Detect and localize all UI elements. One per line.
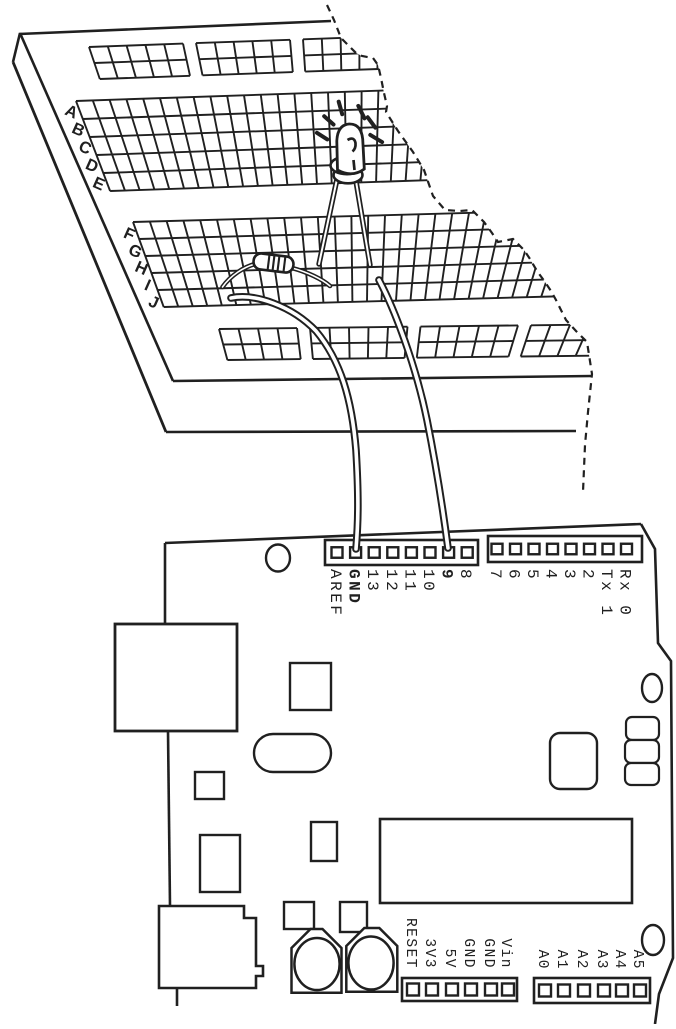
svg-text:9: 9	[438, 569, 456, 581]
svg-text:GND: GND	[480, 938, 496, 969]
svg-text:A2: A2	[573, 950, 589, 970]
svg-text:13: 13	[363, 569, 381, 593]
svg-text:5: 5	[523, 569, 541, 581]
svg-text:2: 2	[579, 569, 597, 581]
svg-text:A0: A0	[534, 950, 550, 970]
svg-text:RESET: RESET	[402, 918, 418, 969]
svg-text:AREF: AREF	[326, 569, 344, 617]
svg-text:A5: A5	[629, 950, 645, 970]
svg-text:10: 10	[419, 569, 437, 593]
svg-text:5V: 5V	[441, 949, 457, 969]
svg-text:GND: GND	[460, 938, 476, 969]
svg-text:GND: GND	[345, 569, 363, 605]
svg-text:7: 7	[486, 569, 504, 581]
svg-text:Tx 1: Tx 1	[597, 569, 615, 617]
svg-text:A4: A4	[611, 950, 627, 970]
svg-text:Vin: Vin	[497, 938, 513, 969]
svg-text:Rx 0: Rx 0	[616, 569, 634, 617]
svg-text:6: 6	[505, 569, 523, 581]
svg-text:A3: A3	[593, 950, 609, 970]
svg-text:11: 11	[400, 569, 418, 593]
svg-text:3: 3	[560, 569, 578, 581]
svg-text:A1: A1	[553, 950, 569, 970]
svg-text:4: 4	[542, 569, 560, 581]
svg-text:3V3: 3V3	[421, 938, 437, 969]
svg-text:12: 12	[382, 569, 400, 593]
svg-text:8: 8	[456, 569, 474, 581]
